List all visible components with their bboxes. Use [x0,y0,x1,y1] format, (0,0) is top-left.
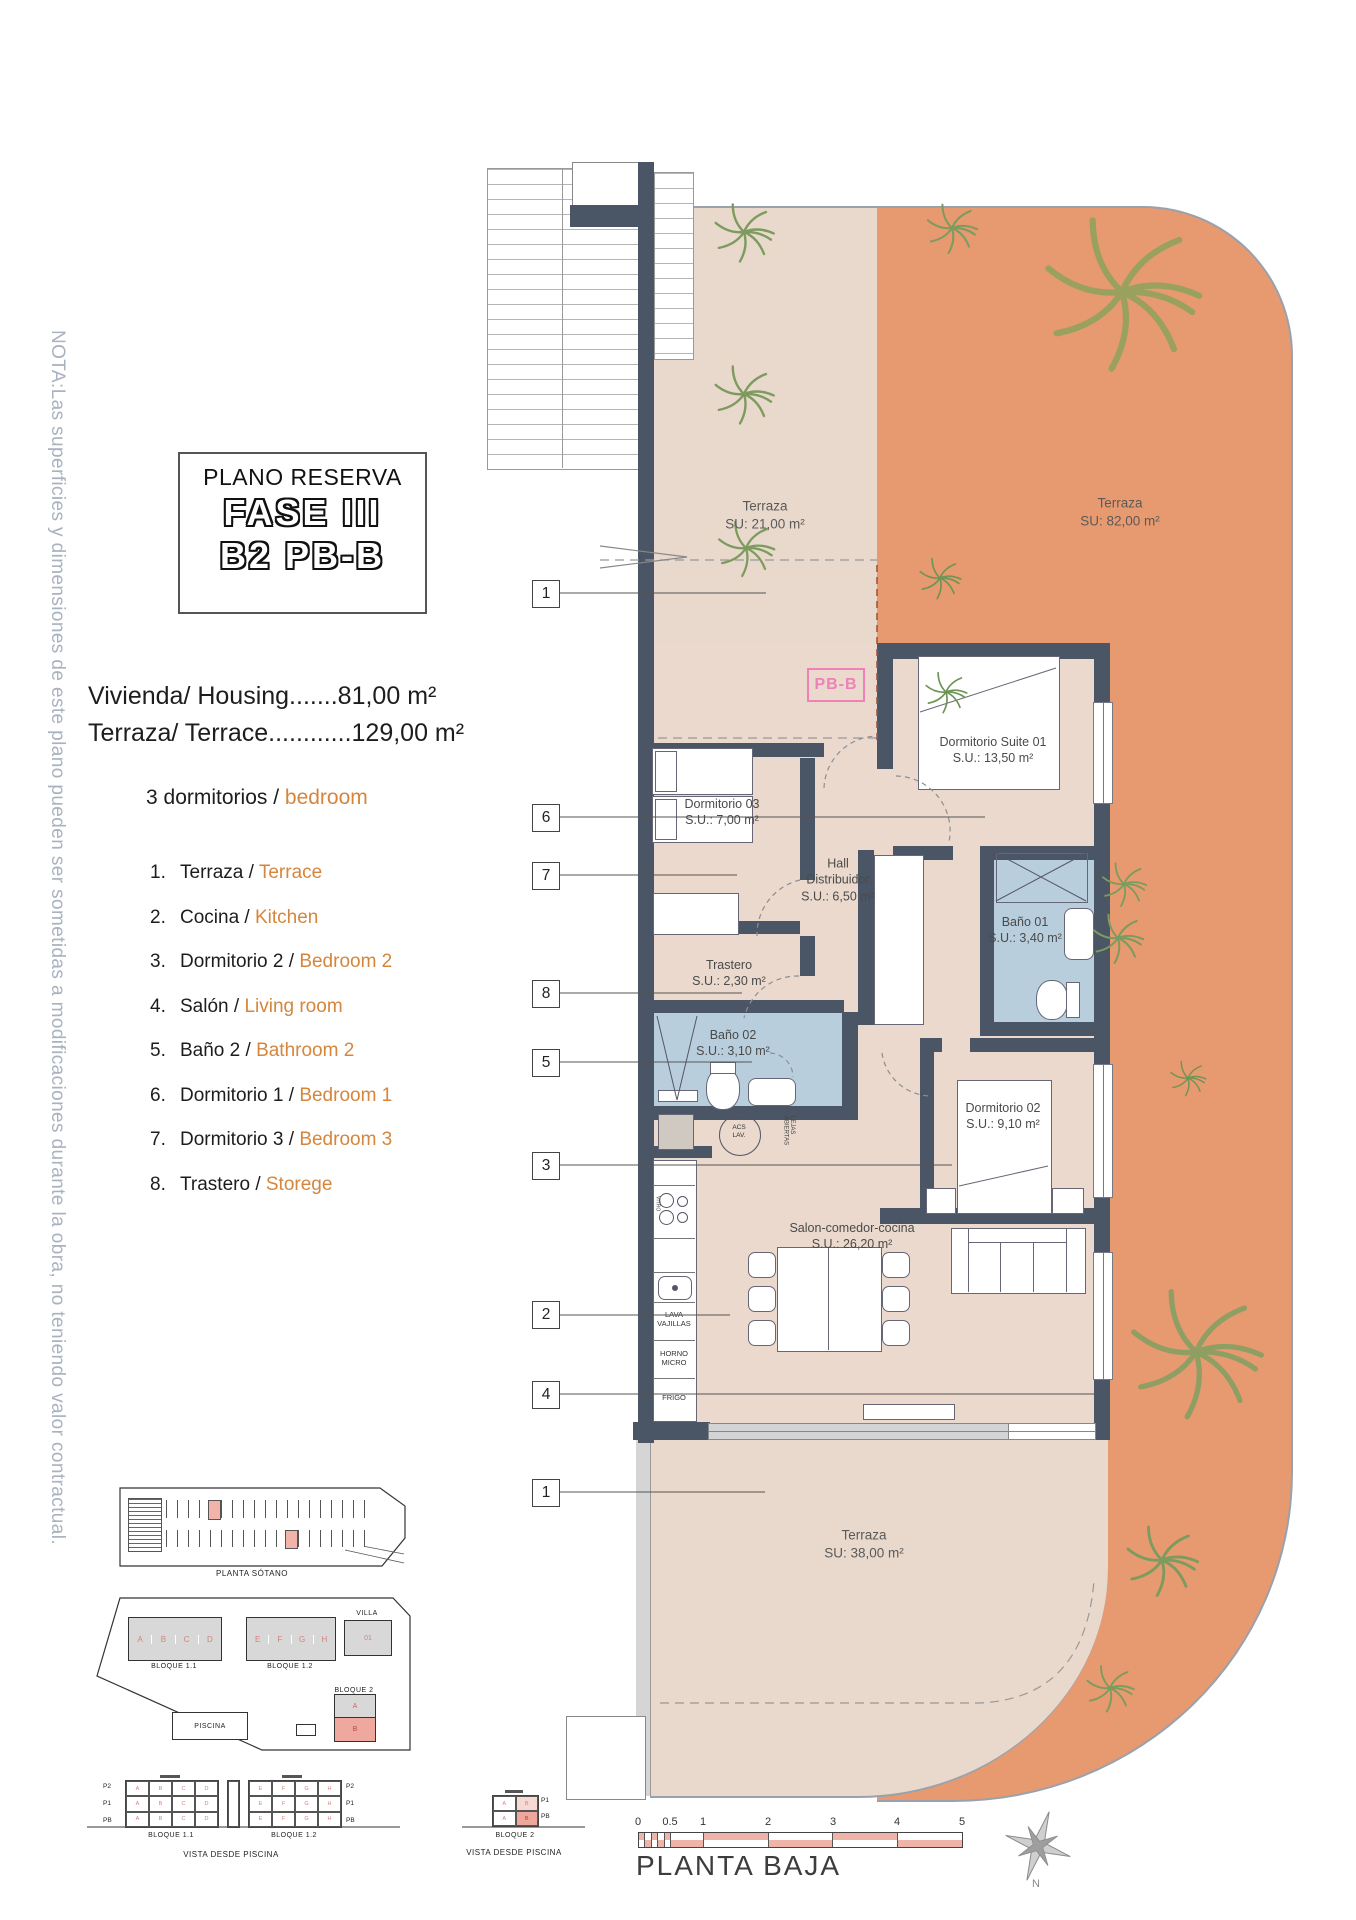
chair [882,1252,910,1278]
stairs-rail [562,168,563,468]
north-label: N [1032,1878,1040,1890]
window [1093,1252,1113,1380]
window [1008,1423,1096,1440]
title-block: PLANO RESERVA FASE III B2 PB-B [178,452,427,614]
planter [566,1716,646,1800]
sink-icon [748,1078,796,1106]
floorplan-sheet: NOTA:Las superficies y dimensiones de es… [0,0,1356,1920]
legend-item: 8.Trastero / Storege [150,1174,470,1196]
room-label-suite-01: Dormitorio Suite 01S.U.: 13,50 m² [940,734,1047,767]
shower-tray [658,1090,698,1102]
legend-item: 1.Terraza / Terrace [150,862,470,884]
floor-caption: PLANTA BAJA [636,1850,841,1882]
room-label-terraza-82: TerrazaSU: 82,00 m² [1080,494,1160,529]
row-label-p2: P2 [103,1783,111,1790]
phase-label: FASE III [180,491,425,534]
unit-code-label: B2 PB-B [180,534,425,577]
room-label-terraza-21: TerrazaSU: 21,00 m² [725,497,805,532]
chair [748,1252,776,1278]
site-small-block [296,1724,316,1736]
sheet-title: PLANO RESERVA [180,464,425,491]
elevation-grid-bloque11: ABCD ABCD ABCD [125,1780,219,1828]
parking-stalls [133,1500,365,1518]
chair [748,1320,776,1346]
room-label-dorm-03: Dormitorio 03S.U.: 7,00 m² [684,796,759,829]
scale-bar [638,1832,963,1848]
hob-burner-icon [677,1212,688,1223]
room-label-terraza-38: TerrazaSU: 38,00 m² [824,1526,904,1561]
highlighted-parking [208,1500,221,1520]
parking-stalls [133,1530,365,1547]
row-label-pb: PB [103,1817,112,1824]
callout-1: 1 [532,580,560,608]
chair [882,1320,910,1346]
sink-icon [1064,908,1094,960]
sotano-caption: PLANTA SÓTANO [216,1569,288,1578]
villa-caption: VILLA [356,1610,378,1617]
highlighted-parking [285,1530,298,1549]
disclaimer-note: NOTA:Las superficies y dimensiones de es… [46,330,68,1660]
legend-item: 5.Baño 2 / Bathroom 2 [150,1040,470,1062]
callout-8: 8 [532,980,560,1008]
bedroom-count: 3 dormitorios / bedroom [146,786,368,810]
site-block-1-2: EFGH [246,1617,336,1661]
elevation-grid-bloque12: EFGH EFGH EFGH [248,1780,342,1828]
callout-7: 7 [532,862,560,890]
bloque12-caption: BLOQUE 1.2 [267,1663,313,1670]
site-block-2-a: A [334,1694,376,1719]
stair-landing [572,162,640,208]
nightstand [1052,1188,1084,1214]
toilet-icon [1036,980,1068,1020]
bed-suite-01 [918,656,1060,790]
shower-icon [996,853,1088,903]
hob-burner-icon [677,1196,688,1207]
surface-summary: Vivienda/ Housing.......81,00 m² Terraza… [88,678,464,752]
callout-6: 6 [532,804,560,832]
elevation-stair-core [227,1780,240,1828]
chair [748,1286,776,1312]
callout-3: 3 [532,1152,560,1180]
view-caption-left: VISTA DESDE PISCINA [183,1850,279,1859]
room-label-bath-02: Baño 02S.U.: 3,10 m² [696,1027,770,1060]
room-label-dorm-02: Dormitorio 02S.U.: 9,10 m² [965,1100,1040,1133]
garage-stairs [128,1498,162,1552]
legend-item: 6.Dormitorio 1 / Bedroom 1 [150,1085,470,1107]
legend-item: 2.Cocina / Kitchen [150,907,470,929]
tv-bench [863,1404,955,1420]
legend-item: 7.Dormitorio 3 / Bedroom 3 [150,1129,470,1151]
chair [882,1286,910,1312]
room-label-trastero: TrasteroS.U.: 2,30 m² [692,957,766,990]
wardrobe [874,855,924,1025]
callout-5: 5 [532,1049,560,1077]
bloque2-caption: BLOQUE 2 [334,1687,373,1694]
washer-label: ACS LAV. [722,1124,756,1140]
laundry-cabinet [658,1114,694,1150]
dining-table [777,1247,882,1352]
housing-area: Vivienda/ Housing.......81,00 m² [88,678,464,715]
shelves-label: LEJAS ABIERTAS [782,1116,795,1156]
terrace-area: Terraza/ Terrace............129,00 m² [88,715,464,752]
site-piscina: PISCINA [172,1712,248,1740]
pillow [655,751,677,792]
site-block-1-1: ABCD [128,1617,222,1661]
sliding-door [708,1423,1010,1440]
callout-4: 4 [532,1381,560,1409]
nightstand [926,1188,956,1214]
toilet-tank [710,1062,736,1074]
row-label-p1: P1 [103,1800,111,1807]
callout-1b: 1 [532,1479,560,1507]
hob-burner-icon [659,1193,674,1208]
legend-item: 4.Salón / Living room [150,996,470,1018]
toilet-icon [706,1068,740,1110]
elevation-grid-bloque2: AB AB [492,1795,539,1827]
dishwasher-label: LAVA VAJILLAS [653,1310,695,1329]
hob-burner-icon [659,1210,674,1225]
room-label-hall: Hall DistribuidorS.U.: 6,50 m² [801,856,875,905]
stairs-upper-flight [654,172,694,360]
pillow [655,799,677,840]
window [1093,702,1113,804]
desk [653,893,739,935]
callout-2: 2 [532,1301,560,1329]
legend-item: 3.Dormitorio 2 / Bedroom 2 [150,951,470,973]
view-caption-right: VISTA DESDE PISCINA [466,1848,562,1857]
site-villa-block: 01 [344,1620,392,1656]
window [1093,1064,1113,1198]
hob-label: VITRO [654,1196,660,1236]
toilet-tank [1066,982,1080,1018]
unit-tag: PB-B [807,668,865,702]
oven-label: HORNO MICRO [653,1349,695,1368]
bloque11-caption: BLOQUE 1.1 [151,1663,197,1670]
room-label-salon: Salon-comedor-cocinaS.U.: 26,20 m² [789,1220,914,1253]
site-block-2-b-highlighted: B [334,1717,376,1742]
fridge-label: FRIGO [653,1393,695,1402]
room-label-bath-01: Baño 01S.U.: 3,40 m² [988,914,1062,947]
